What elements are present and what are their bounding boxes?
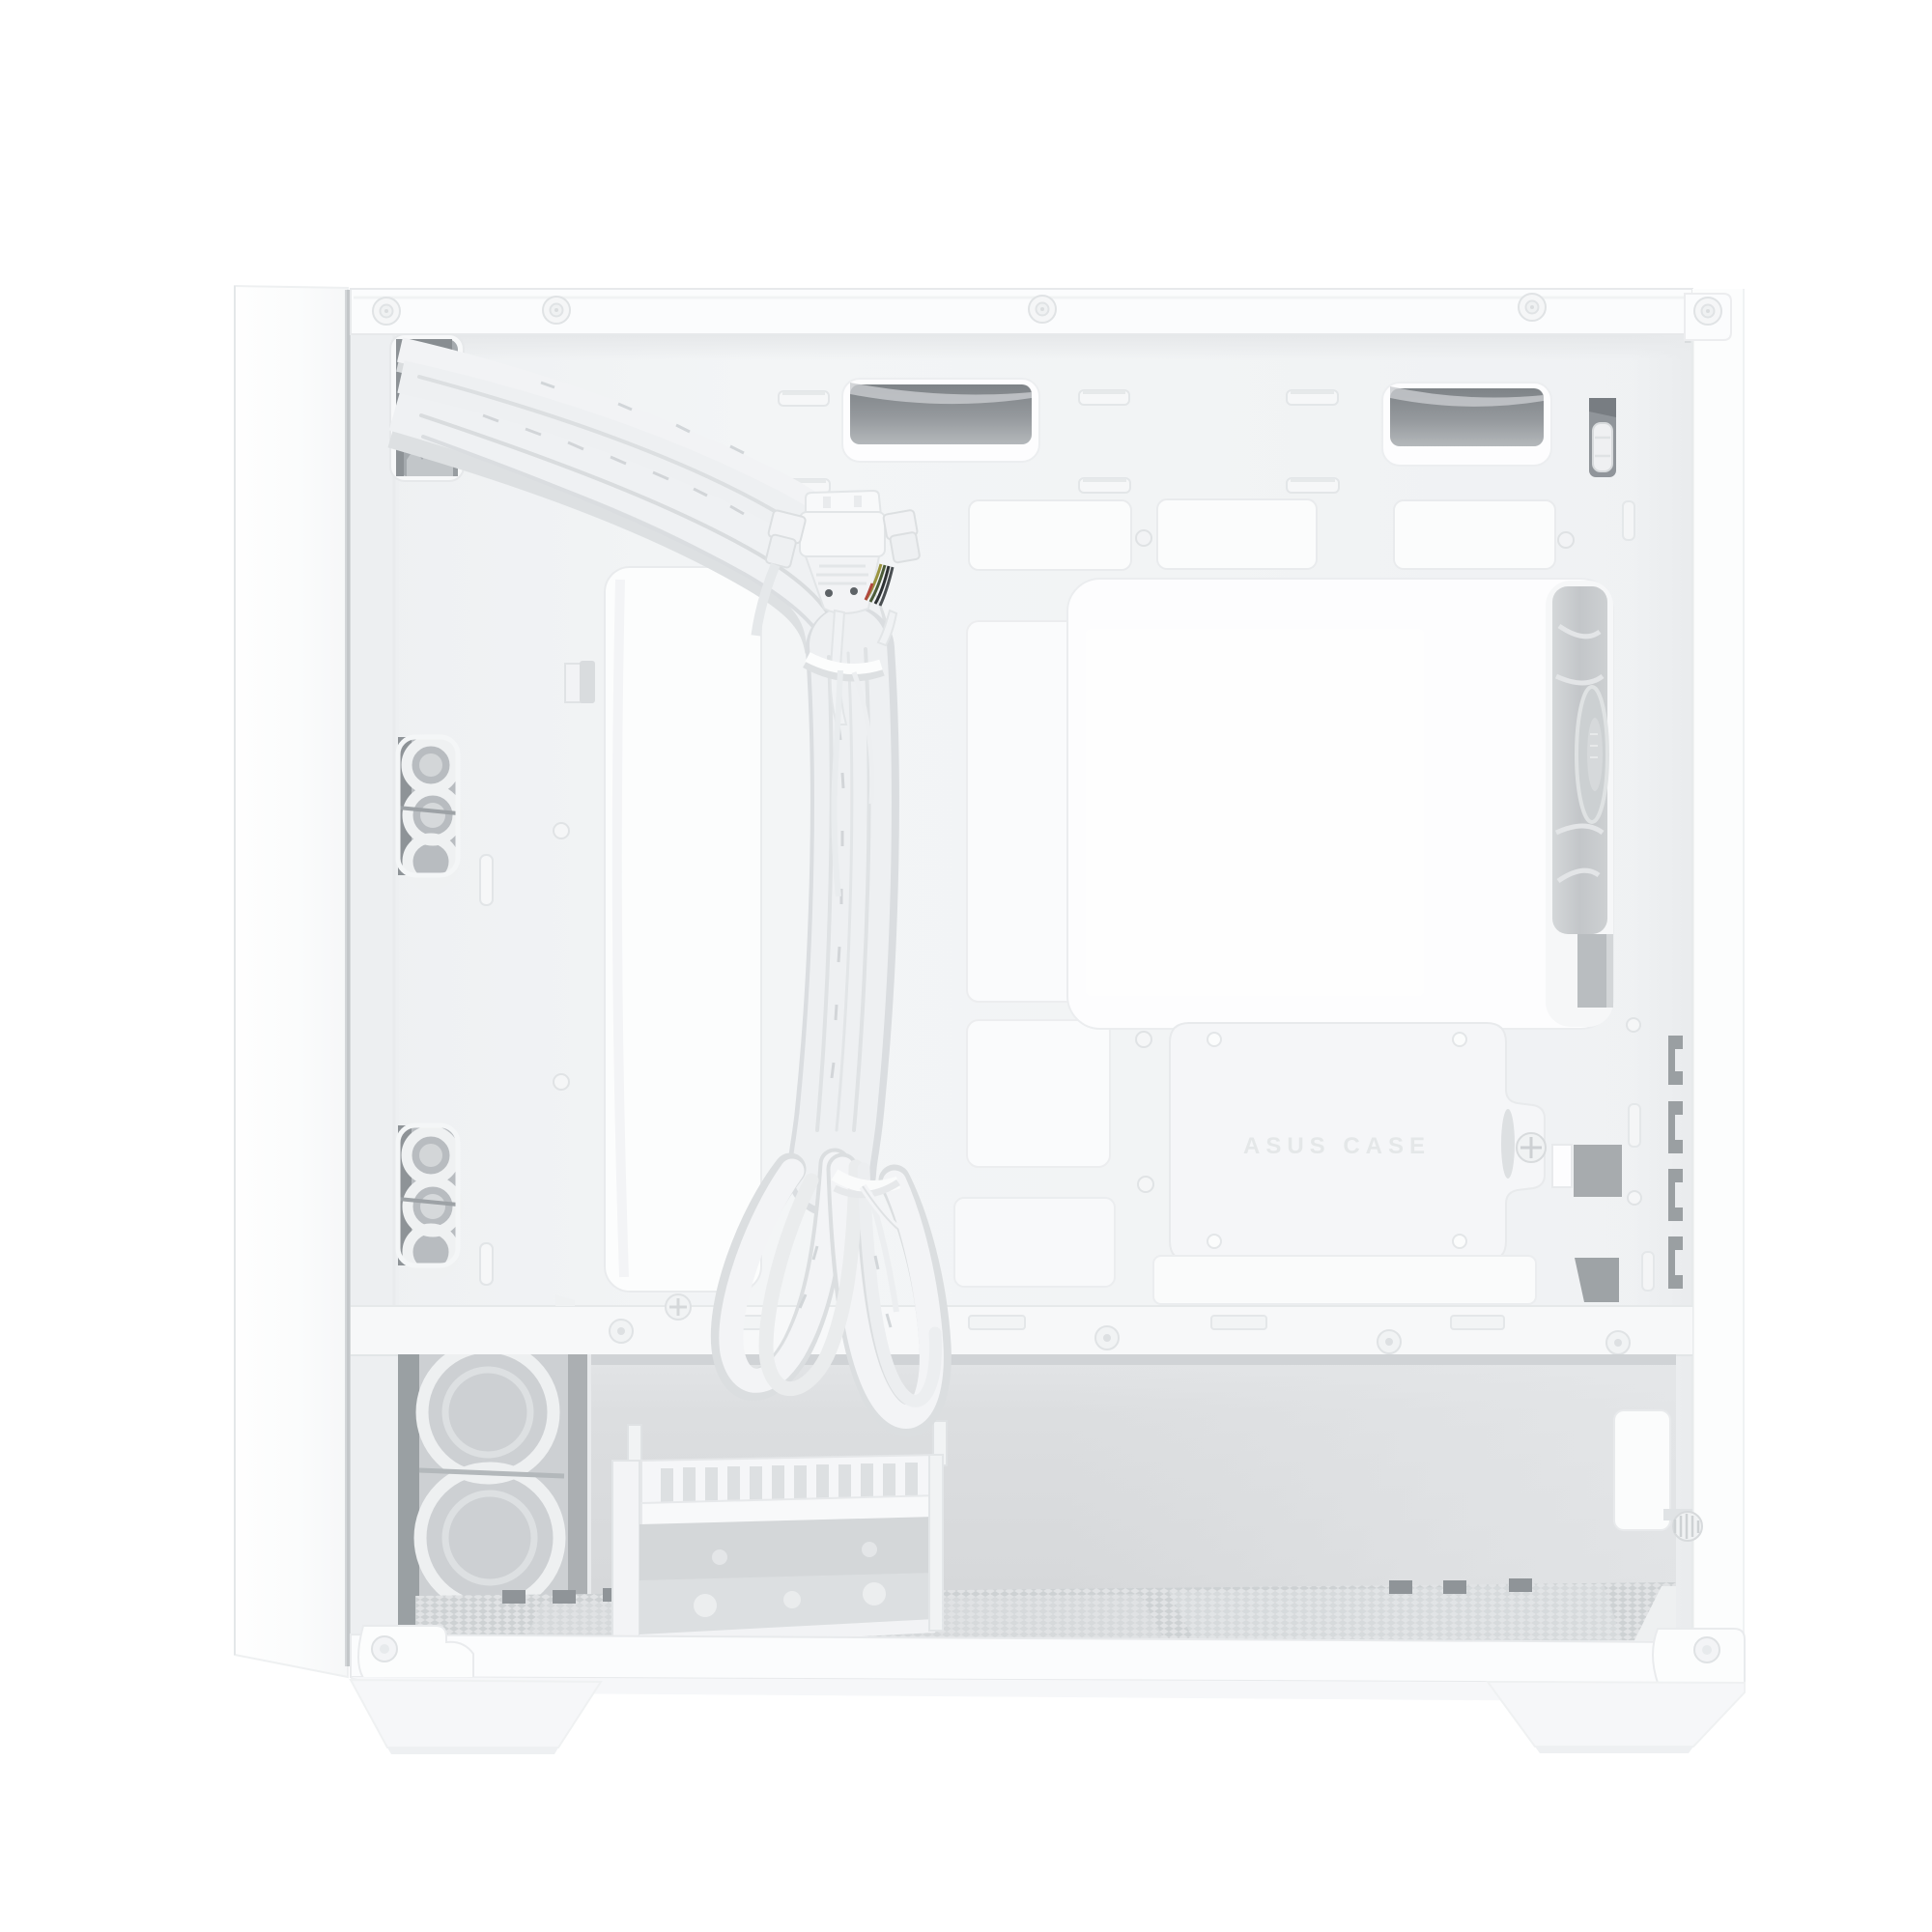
svg-text:ASUS CASE: ASUS CASE bbox=[1243, 1133, 1431, 1159]
